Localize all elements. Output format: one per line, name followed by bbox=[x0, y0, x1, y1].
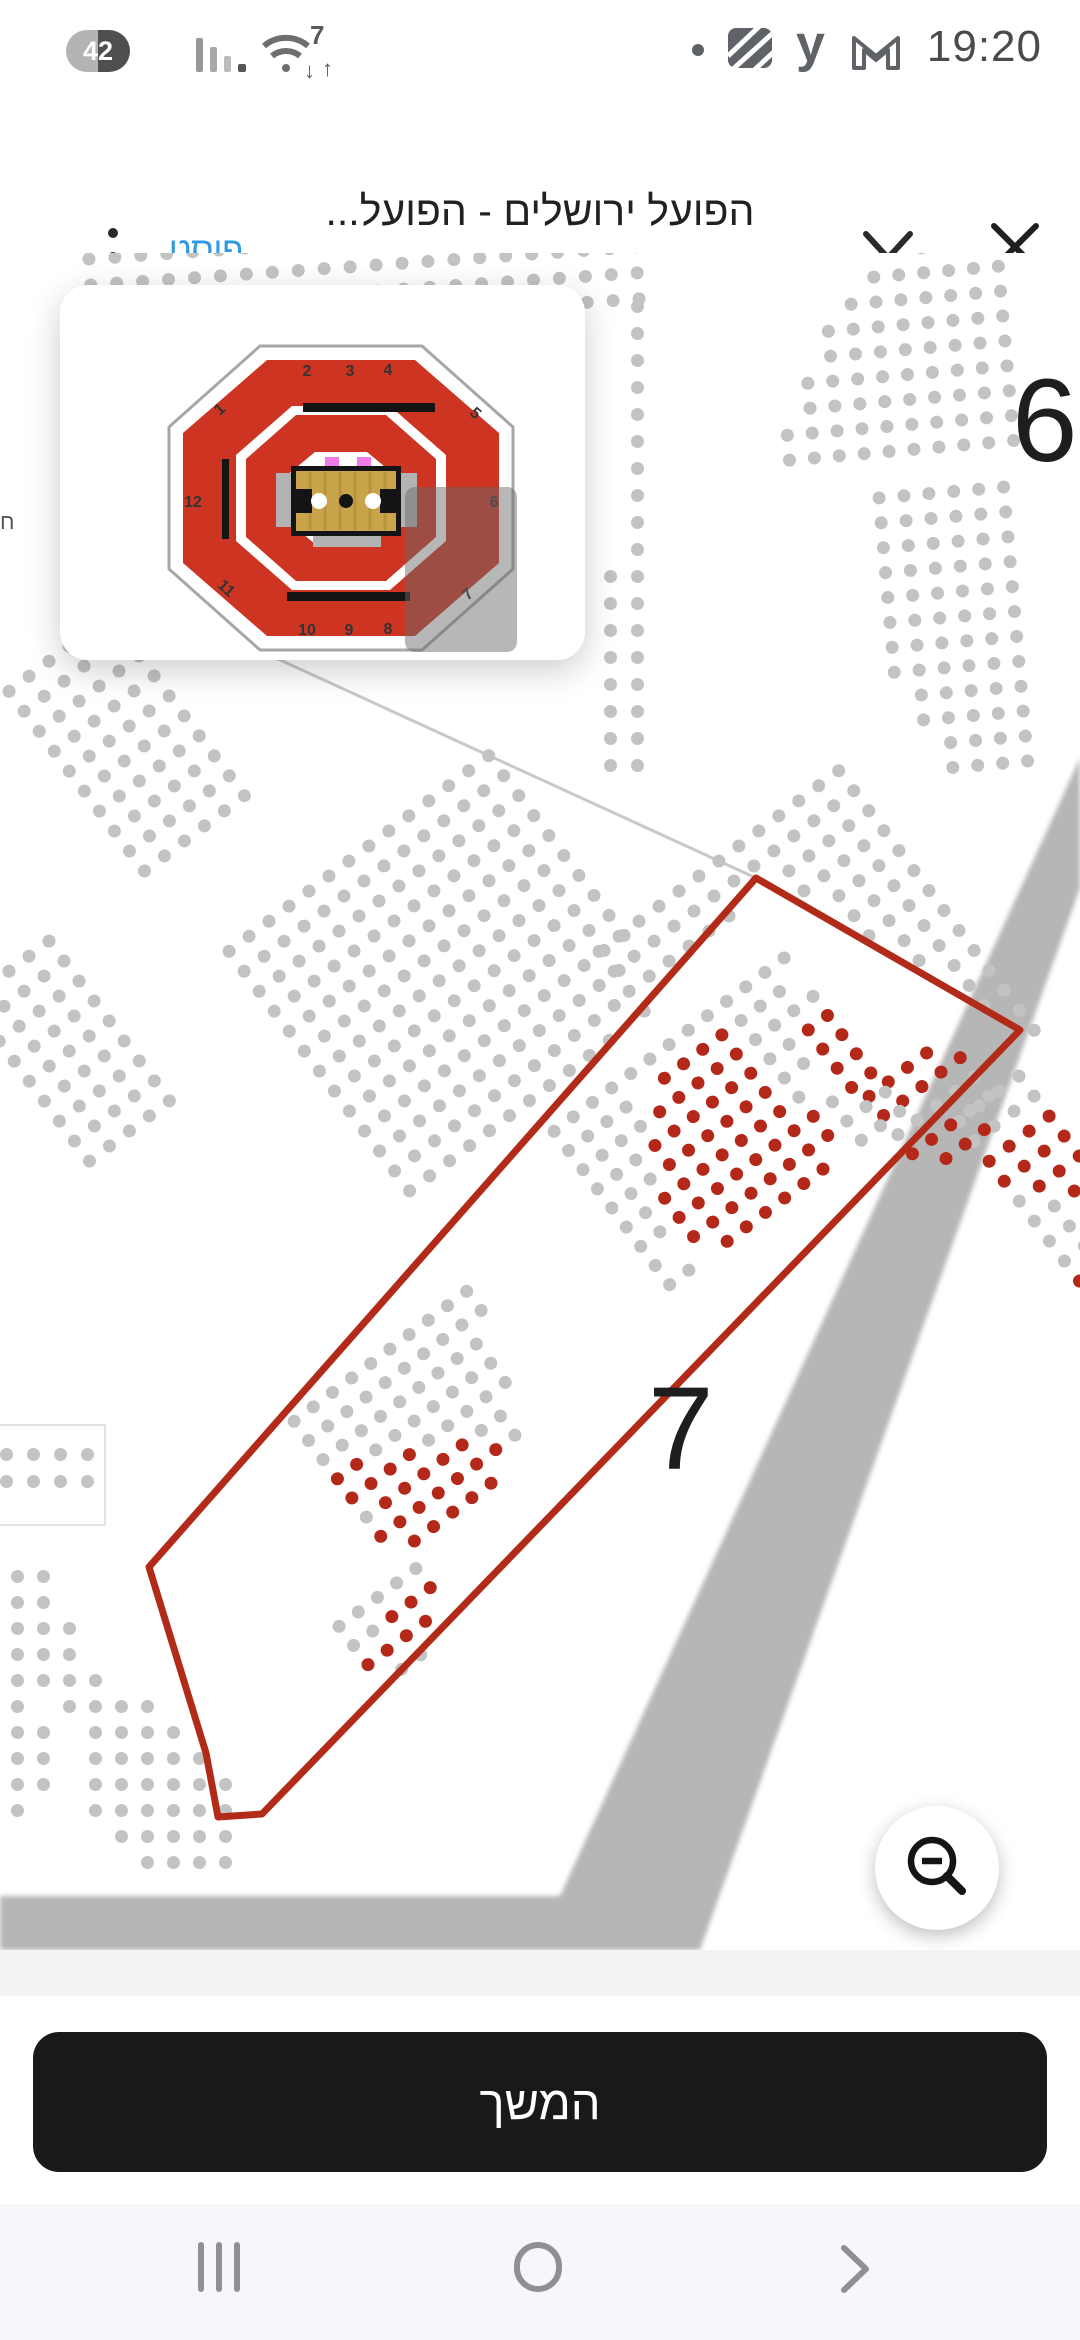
continue-button-label: המשך bbox=[479, 2075, 600, 2130]
minimap-section-2: 2 bbox=[303, 363, 312, 380]
status-bar: 42 7 ↓ ↑ y 19:20 bbox=[0, 0, 1080, 90]
page-section-divider bbox=[0, 1950, 1080, 1996]
minimap-viewport[interactable] bbox=[405, 487, 517, 652]
minimap-section-3: 3 bbox=[346, 363, 355, 380]
minimap-section-10: 10 bbox=[298, 622, 316, 639]
svg-text:7: 7 bbox=[310, 24, 324, 50]
minimap-section-9: 9 bbox=[345, 622, 354, 639]
minimap-overview[interactable]: 123456789101112 bbox=[60, 285, 585, 660]
android-nav-bar bbox=[0, 2204, 1080, 2340]
yahoo-app-icon: y bbox=[796, 14, 825, 74]
minimap-svg: 123456789101112 bbox=[60, 285, 585, 660]
page-title: הפועל ירושלים - הפועל... bbox=[190, 188, 890, 235]
clock-text: 19:20 bbox=[927, 22, 1042, 72]
continue-button[interactable]: המשך bbox=[33, 2032, 1047, 2172]
minimap-section-12: 12 bbox=[184, 494, 202, 511]
zoom-out-button[interactable] bbox=[875, 1806, 999, 1930]
svg-text:↑: ↑ bbox=[322, 56, 333, 80]
battery-icon: 42 bbox=[66, 30, 130, 72]
seat-map[interactable]: 67 ח bbox=[0, 253, 1080, 1950]
mail-app-icon bbox=[726, 26, 776, 72]
section7-outline[interactable] bbox=[149, 878, 1020, 1817]
minimap-section-4: 4 bbox=[384, 362, 393, 379]
signal-bars-icon bbox=[196, 36, 252, 72]
back-nav-icon[interactable] bbox=[838, 2244, 872, 2294]
svg-text:↓: ↓ bbox=[304, 58, 315, 80]
recents-nav-icon[interactable] bbox=[198, 2204, 258, 2340]
section-number-label: 7 bbox=[648, 1361, 714, 1497]
edge-section-label: ח bbox=[0, 509, 14, 535]
browser-header: פוסט הפועל ירושלים - הפועל... tickets.ha… bbox=[0, 90, 1080, 250]
gmail-icon bbox=[850, 32, 902, 72]
home-nav-icon[interactable] bbox=[514, 2242, 562, 2292]
notification-dot-icon bbox=[692, 44, 704, 56]
minimap-section-8: 8 bbox=[384, 621, 393, 638]
zoom-out-magnifier-icon bbox=[900, 1831, 974, 1905]
basketball-court bbox=[276, 466, 417, 547]
battery-level: 42 bbox=[66, 30, 130, 72]
section-number-label: 6 bbox=[1012, 353, 1078, 489]
wifi-icon: 7 ↓ ↑ bbox=[258, 24, 342, 80]
